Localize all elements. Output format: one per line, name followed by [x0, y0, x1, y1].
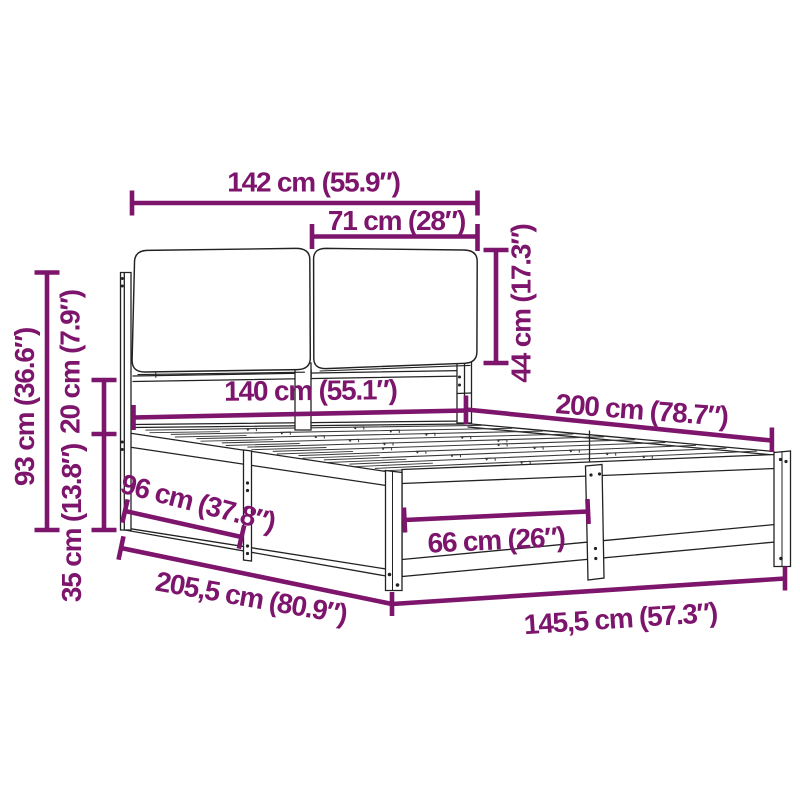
svg-text:20 cm (7.9″): 20 cm (7.9″) — [55, 290, 86, 434]
svg-text:66 cm (26″): 66 cm (26″) — [427, 521, 565, 558]
svg-text:71 cm (28″): 71 cm (28″) — [328, 205, 465, 236]
svg-text:93 cm (36.6″): 93 cm (36.6″) — [9, 328, 40, 486]
svg-text:140 cm (55.1″): 140 cm (55.1″) — [224, 374, 397, 407]
svg-text:142 cm (55.9″): 142 cm (55.9″) — [227, 167, 400, 198]
svg-text:35 cm (13.8″): 35 cm (13.8″) — [56, 444, 87, 602]
svg-text:44 cm (17.3″): 44 cm (17.3″) — [506, 224, 537, 382]
